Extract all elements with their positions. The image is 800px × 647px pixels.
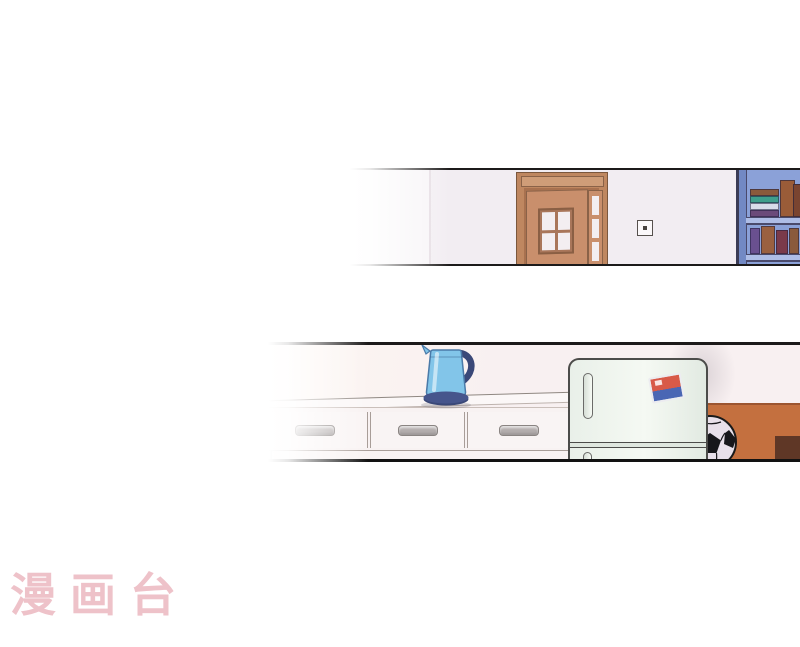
watermark-manhuatai: 漫画台 (10, 572, 190, 618)
panel-border (258, 342, 800, 345)
sticker-mark (655, 380, 663, 386)
door-leaf (526, 189, 588, 266)
drawer-handle (295, 425, 335, 436)
wall-switch (637, 220, 653, 236)
book (750, 189, 779, 196)
drawer-row (262, 412, 574, 448)
drawer-handle (398, 425, 438, 436)
drawer-handle (499, 425, 539, 436)
door-transom-window (521, 176, 604, 187)
window-pane (542, 233, 555, 251)
sidelight-pane (592, 196, 599, 215)
bookshelf (736, 170, 800, 264)
panel-kitchen (258, 342, 800, 462)
stacked-books (750, 187, 779, 217)
sidelight-pane (592, 242, 599, 261)
sidelight-pane (592, 219, 599, 238)
door-window (538, 208, 574, 255)
book (776, 230, 788, 254)
door (516, 172, 608, 266)
wall-corner-section (340, 168, 429, 266)
panel-hallway (340, 168, 800, 266)
wall-switch-button (643, 226, 647, 230)
drawer (467, 412, 571, 448)
standing-books (750, 225, 800, 254)
fridge-door-split (570, 442, 706, 448)
book (750, 203, 779, 210)
wall-corner-line (429, 168, 431, 266)
electric-kettle (415, 344, 479, 410)
panel-border (340, 168, 800, 170)
panel-border (258, 459, 800, 462)
book (750, 196, 779, 203)
book (750, 228, 760, 254)
panel-border (340, 264, 800, 267)
drawer (262, 412, 368, 448)
door-sidelight (588, 190, 603, 266)
window-pane (542, 212, 555, 230)
shelf-board (746, 254, 800, 262)
shelf-board (746, 217, 800, 225)
door-opening (524, 188, 599, 266)
drawer (370, 412, 465, 448)
kettle-graphic (415, 344, 479, 410)
book (750, 210, 779, 217)
book (789, 228, 799, 254)
counter-body (262, 407, 574, 462)
book (761, 226, 775, 254)
fridge-handle-upper (583, 373, 593, 419)
book (793, 184, 800, 217)
refrigerator (568, 358, 708, 462)
fridge-magnet-sticker (648, 372, 685, 403)
window-pane (558, 212, 571, 230)
window-pane (558, 232, 571, 250)
comic-page: 漫画台 (0, 0, 800, 647)
